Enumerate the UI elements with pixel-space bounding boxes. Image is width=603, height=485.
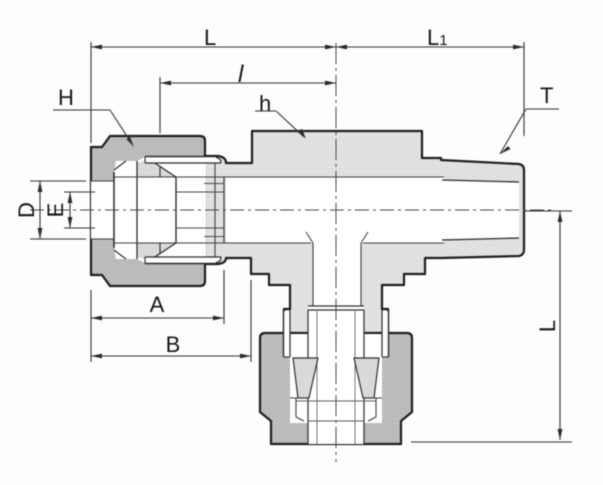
- svg-text:L: L: [535, 320, 560, 332]
- svg-text:E: E: [43, 203, 68, 218]
- svg-text:B: B: [166, 332, 181, 357]
- svg-text:A: A: [150, 292, 165, 317]
- svg-text:l: l: [238, 61, 244, 88]
- svg-text:H: H: [58, 85, 74, 110]
- svg-text:T: T: [540, 83, 553, 108]
- svg-text:h: h: [259, 91, 271, 116]
- svg-text:D: D: [14, 202, 39, 218]
- svg-text:L: L: [204, 25, 216, 50]
- svg-text:L1: L1: [427, 25, 448, 50]
